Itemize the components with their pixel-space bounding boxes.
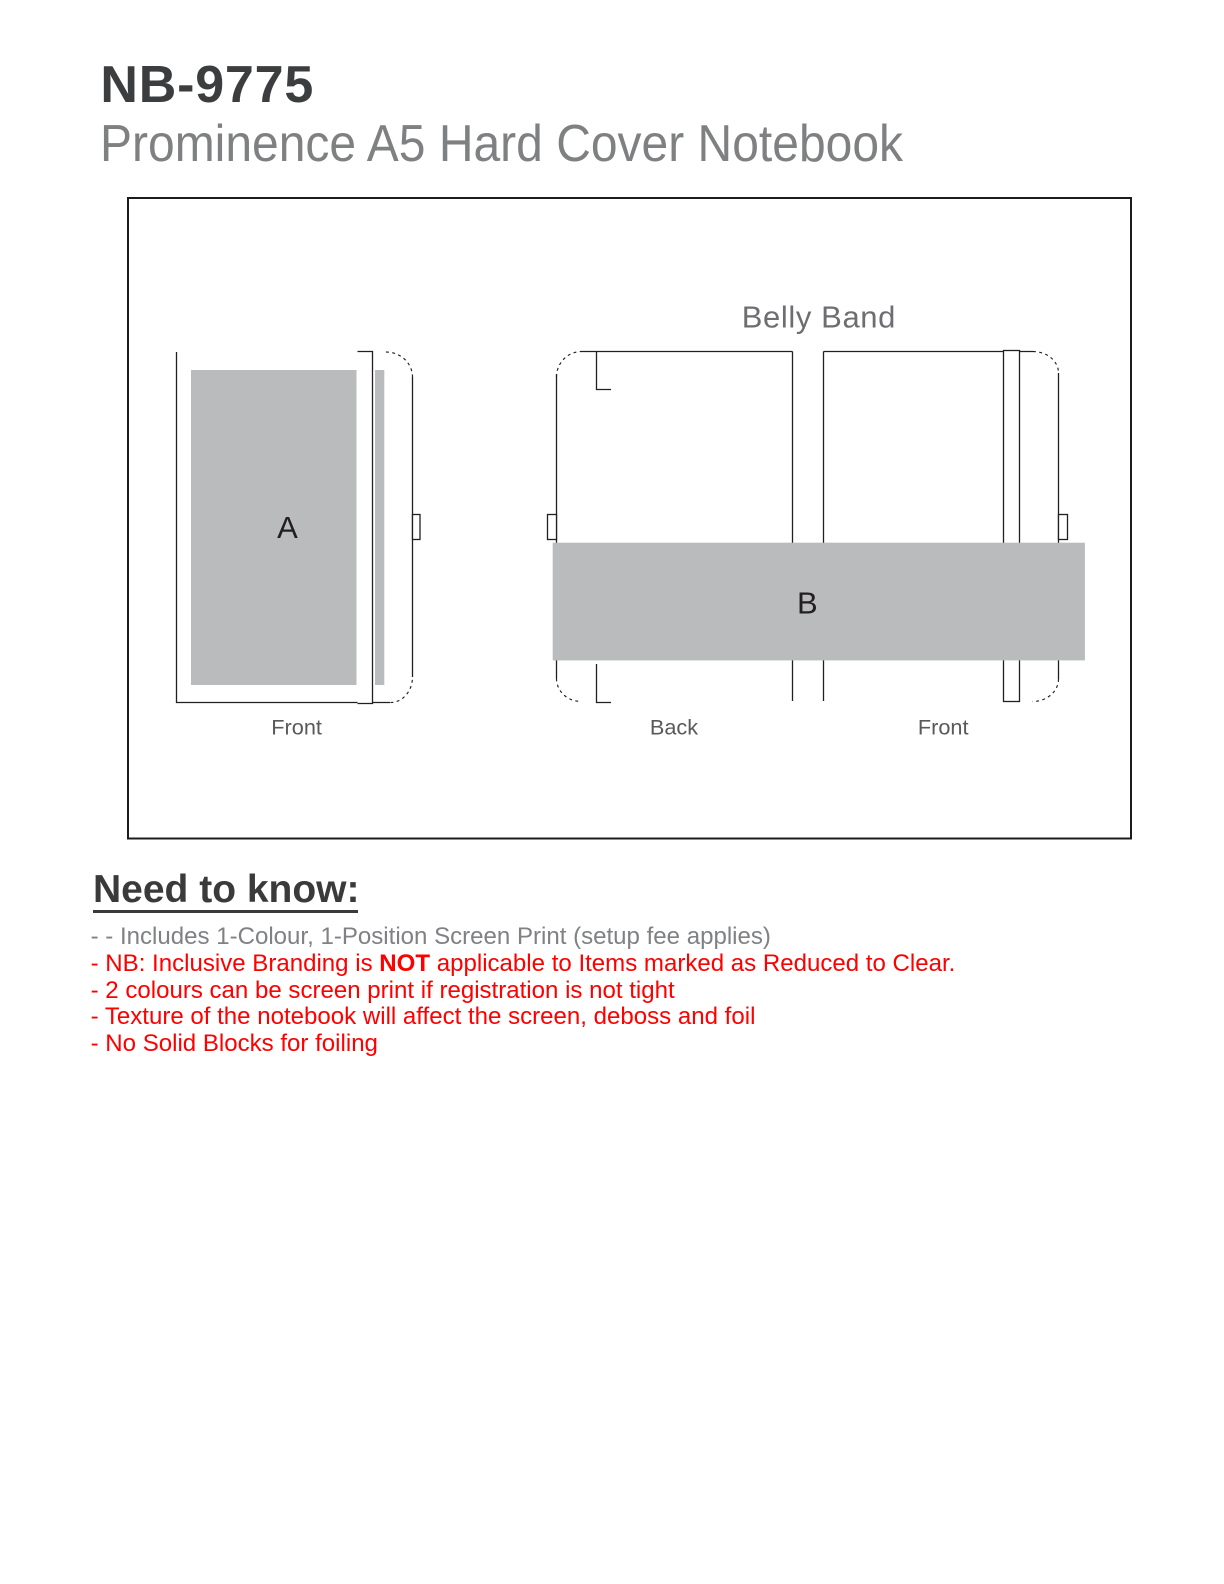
svg-text:Back: Back	[650, 714, 698, 739]
svg-text:Front: Front	[918, 714, 969, 739]
svg-text:Front: Front	[271, 714, 322, 739]
svg-text:A: A	[277, 510, 298, 545]
svg-text:B: B	[797, 585, 818, 620]
svg-text:Belly Band: Belly Band	[742, 300, 896, 335]
